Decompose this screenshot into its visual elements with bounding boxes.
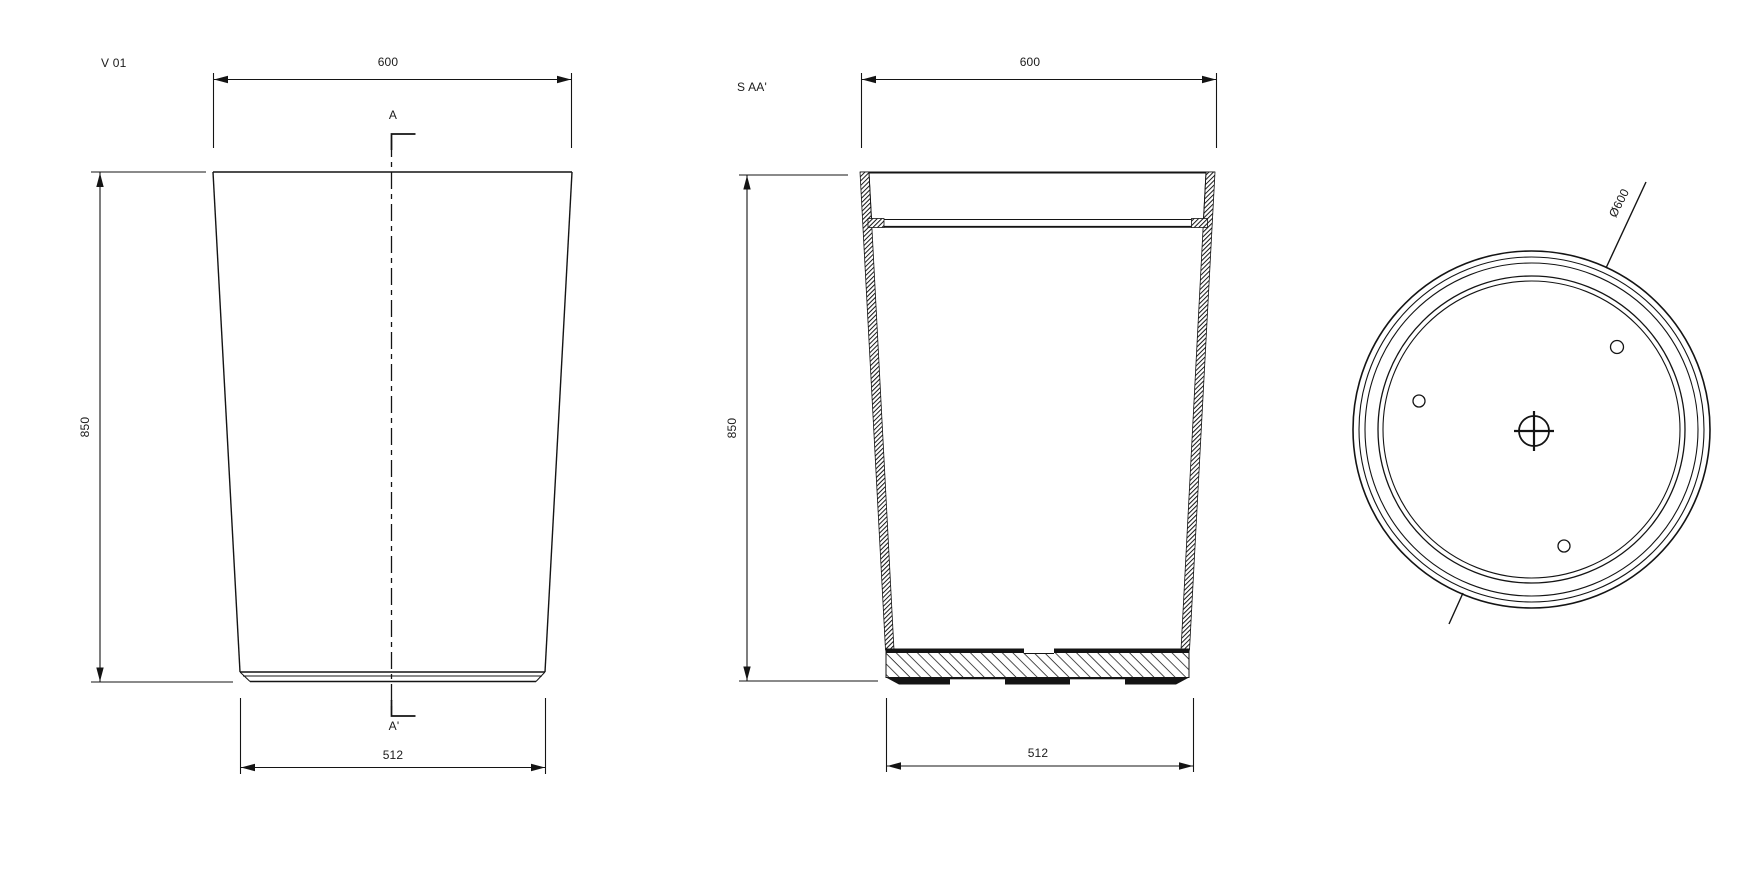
plan-hole xyxy=(1611,341,1624,354)
section-view-body xyxy=(860,172,1215,685)
front-section-marker-a-prime: A' xyxy=(382,719,406,733)
plan-hole xyxy=(1558,540,1570,552)
section-dim-top-width: 600 xyxy=(1008,55,1052,69)
plan-view xyxy=(1353,182,1710,624)
diameter-leader-tick xyxy=(1449,593,1463,624)
section-dim-height: 850 xyxy=(725,406,739,450)
center-drain-crosshair xyxy=(1514,411,1554,451)
front-section-marker-a: A xyxy=(383,108,403,122)
technical-drawing-canvas: V 01 600 A 850 A' 512 S AA' 600 850 512 … xyxy=(0,0,1753,882)
section-view-label: S AA' xyxy=(737,80,767,94)
plan-hole xyxy=(1413,395,1425,407)
front-view-outline xyxy=(213,172,572,682)
front-view-label: V 01 xyxy=(101,56,127,70)
front-dim-top-width: 600 xyxy=(366,55,410,69)
drawing-linework xyxy=(0,0,1753,882)
front-view-dimensions xyxy=(91,73,572,774)
front-view-section-line xyxy=(392,134,416,716)
front-dim-height: 850 xyxy=(78,405,92,449)
section-dim-bottom-width: 512 xyxy=(1016,746,1060,760)
front-dim-bottom-width: 512 xyxy=(371,748,415,762)
